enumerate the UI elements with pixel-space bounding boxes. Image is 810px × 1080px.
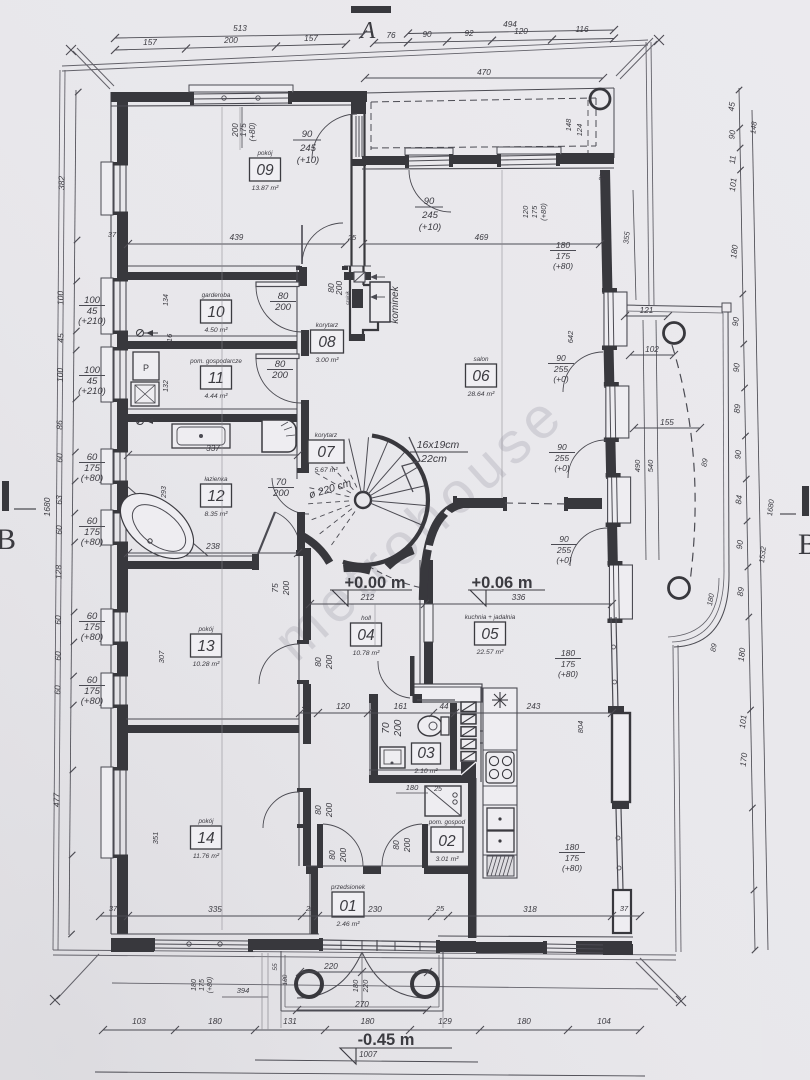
svg-text:100: 100 — [84, 295, 101, 306]
svg-text:200: 200 — [334, 281, 344, 296]
svg-text:60: 60 — [87, 452, 98, 463]
svg-text:1680: 1680 — [42, 497, 52, 516]
svg-text:513: 513 — [233, 24, 247, 33]
svg-text:60: 60 — [87, 675, 98, 686]
svg-text:103: 103 — [132, 1017, 146, 1026]
svg-text:89: 89 — [731, 403, 742, 414]
svg-text:37: 37 — [108, 230, 117, 239]
svg-text:80: 80 — [313, 805, 323, 815]
svg-text:10: 10 — [207, 304, 225, 321]
svg-text:10.78 m²: 10.78 m² — [353, 650, 381, 657]
svg-text:336: 336 — [512, 593, 526, 602]
svg-text:55: 55 — [272, 963, 279, 971]
svg-text:salon: salon — [473, 356, 489, 363]
svg-text:45: 45 — [55, 333, 65, 343]
svg-text:175: 175 — [561, 659, 575, 669]
svg-text:90: 90 — [559, 534, 569, 544]
svg-text:469: 469 — [475, 233, 489, 242]
svg-text:(+80): (+80) — [553, 261, 573, 271]
svg-text:37: 37 — [109, 904, 118, 913]
svg-text:307: 307 — [157, 650, 166, 663]
svg-text:łazienka: łazienka — [204, 476, 228, 483]
svg-text:132: 132 — [163, 380, 170, 392]
svg-text:355: 355 — [621, 230, 632, 244]
svg-text:161: 161 — [394, 702, 408, 711]
svg-text:22cm: 22cm — [420, 453, 447, 465]
svg-text:90: 90 — [732, 449, 743, 460]
svg-text:3.01 m²: 3.01 m² — [435, 856, 459, 863]
svg-text:80: 80 — [278, 291, 289, 302]
svg-text:100: 100 — [84, 365, 101, 376]
svg-text:09: 09 — [256, 162, 274, 179]
svg-text:470: 470 — [477, 68, 491, 77]
svg-text:60: 60 — [87, 611, 98, 622]
svg-text:642: 642 — [566, 330, 575, 343]
svg-text:101: 101 — [737, 714, 749, 729]
svg-text:477: 477 — [52, 793, 62, 807]
svg-text:(+80): (+80) — [562, 863, 582, 873]
svg-text:16x19cm: 16x19cm — [417, 439, 460, 451]
svg-text:92: 92 — [464, 29, 474, 38]
svg-text:243: 243 — [526, 702, 541, 711]
svg-text:07: 07 — [317, 444, 336, 461]
svg-text:pokój: pokój — [256, 150, 273, 157]
svg-text:12: 12 — [207, 488, 225, 505]
svg-text:90: 90 — [730, 316, 741, 327]
svg-text:60: 60 — [54, 525, 64, 535]
svg-text:63: 63 — [54, 495, 64, 505]
svg-text:08: 08 — [318, 334, 336, 351]
svg-text:2.10 m²: 2.10 m² — [413, 768, 438, 775]
svg-text:czujnik: czujnik — [345, 290, 350, 305]
svg-text:804: 804 — [576, 721, 585, 734]
svg-text:pokój: pokój — [197, 818, 214, 825]
svg-text:212: 212 — [360, 593, 375, 602]
svg-text:90: 90 — [734, 539, 745, 550]
svg-text:180: 180 — [406, 783, 419, 792]
svg-text:102: 102 — [645, 345, 659, 354]
svg-text:255: 255 — [556, 545, 571, 555]
svg-text:45: 45 — [726, 101, 737, 112]
svg-text:25: 25 — [301, 703, 310, 710]
svg-text:180: 180 — [282, 974, 289, 985]
svg-text:200: 200 — [281, 581, 291, 596]
svg-text:128: 128 — [53, 565, 63, 579]
svg-text:4.50 m²: 4.50 m² — [204, 327, 228, 334]
svg-text:kuchnia + jadalnia: kuchnia + jadalnia — [465, 614, 516, 621]
svg-text:(+80): (+80) — [248, 122, 257, 141]
svg-text:60: 60 — [52, 685, 62, 695]
svg-text:180: 180 — [565, 842, 579, 852]
svg-text:89: 89 — [735, 586, 746, 597]
svg-text:255: 255 — [553, 364, 568, 374]
svg-text:180: 180 — [556, 240, 570, 250]
svg-text:+0.06 m: +0.06 m — [471, 574, 532, 592]
svg-text:(+10): (+10) — [297, 155, 319, 166]
svg-text:90: 90 — [302, 129, 313, 140]
svg-text:01: 01 — [339, 898, 356, 915]
svg-text:25: 25 — [305, 904, 315, 913]
svg-text:120: 120 — [514, 27, 528, 36]
svg-text:02: 02 — [438, 833, 456, 850]
svg-text:335: 335 — [208, 905, 222, 914]
svg-text:(+80): (+80) — [81, 696, 103, 707]
svg-text:90: 90 — [556, 353, 566, 363]
svg-text:25: 25 — [435, 904, 445, 913]
svg-text:70: 70 — [276, 477, 287, 488]
svg-text:04: 04 — [357, 627, 375, 644]
svg-text:86: 86 — [55, 420, 65, 430]
svg-text:175: 175 — [239, 123, 248, 137]
svg-text:44: 44 — [439, 702, 449, 711]
svg-text:351: 351 — [151, 832, 160, 845]
svg-text:316: 316 — [165, 333, 174, 346]
svg-text:175: 175 — [530, 205, 539, 218]
svg-text:200: 200 — [274, 302, 292, 313]
svg-text:75: 75 — [270, 583, 280, 593]
svg-text:100: 100 — [55, 368, 65, 382]
svg-text:(+0): (+0) — [556, 555, 572, 565]
svg-text:(+80): (+80) — [81, 632, 103, 643]
svg-text:(+80): (+80) — [81, 473, 103, 484]
svg-text:06: 06 — [472, 368, 490, 385]
svg-text:(+80): (+80) — [81, 537, 103, 548]
svg-text:60: 60 — [53, 615, 63, 625]
svg-text:245: 245 — [299, 143, 317, 154]
svg-text:180: 180 — [361, 1017, 375, 1026]
svg-text:157: 157 — [143, 38, 157, 47]
svg-text:korytarz: korytarz — [315, 432, 338, 439]
svg-text:101: 101 — [727, 177, 739, 192]
svg-text:175: 175 — [556, 251, 570, 261]
svg-text:175: 175 — [199, 979, 206, 991]
svg-text:131: 131 — [283, 1017, 297, 1026]
svg-text:124: 124 — [575, 124, 584, 137]
svg-text:80: 80 — [313, 657, 323, 667]
svg-text:60: 60 — [87, 516, 98, 527]
svg-text:8.35 m²: 8.35 m² — [204, 511, 228, 518]
svg-text:korytarz: korytarz — [316, 322, 339, 329]
svg-text:439: 439 — [230, 233, 244, 242]
svg-text:11.76 m²: 11.76 m² — [193, 853, 220, 860]
svg-text:5.67 m²: 5.67 m² — [314, 467, 338, 474]
svg-text:200: 200 — [338, 848, 348, 863]
svg-text:+0.00 m: +0.00 m — [344, 574, 405, 592]
svg-text:180: 180 — [191, 979, 198, 991]
svg-text:37: 37 — [620, 904, 629, 913]
svg-text:05: 05 — [481, 626, 499, 643]
svg-text:22.57 m²: 22.57 m² — [476, 649, 505, 656]
svg-text:220: 220 — [361, 979, 370, 993]
svg-text:382: 382 — [57, 176, 67, 190]
svg-text:238: 238 — [205, 542, 220, 551]
svg-text:70: 70 — [381, 722, 392, 734]
svg-text:200: 200 — [393, 719, 404, 737]
svg-text:394: 394 — [237, 986, 250, 995]
svg-text:13.87 m²: 13.87 m² — [252, 185, 280, 192]
svg-text:121: 121 — [640, 306, 654, 315]
svg-text:(+80): (+80) — [558, 669, 578, 679]
svg-text:(+0): (+0) — [554, 463, 570, 473]
svg-text:(+80): (+80) — [207, 977, 214, 994]
svg-text:25: 25 — [347, 233, 357, 242]
svg-text:104: 104 — [597, 1017, 611, 1026]
svg-text:200: 200 — [324, 655, 334, 670]
svg-text:1007: 1007 — [359, 1050, 377, 1059]
svg-text:318: 318 — [523, 905, 537, 914]
svg-text:200: 200 — [272, 488, 290, 499]
svg-text:garderoba: garderoba — [202, 292, 231, 299]
svg-text:540: 540 — [646, 459, 655, 472]
svg-text:pom. gospod: pom. gospod — [428, 819, 466, 826]
svg-text:157: 157 — [304, 34, 318, 43]
svg-text:155: 155 — [660, 418, 674, 427]
svg-text:148: 148 — [564, 118, 573, 131]
svg-text:(+80): (+80) — [539, 203, 548, 221]
svg-text:P: P — [143, 363, 149, 373]
svg-text:148: 148 — [748, 120, 759, 134]
svg-text:116: 116 — [575, 25, 588, 34]
svg-text:80: 80 — [275, 359, 286, 370]
svg-text:14: 14 — [197, 830, 215, 847]
svg-text:przedsionek: przedsionek — [330, 884, 366, 891]
svg-text:490: 490 — [633, 459, 642, 472]
svg-text:84: 84 — [733, 494, 744, 505]
svg-text:90: 90 — [557, 442, 567, 452]
svg-text:(+0): (+0) — [553, 374, 569, 384]
svg-text:60: 60 — [53, 651, 63, 661]
svg-text:4.44 m²: 4.44 m² — [204, 393, 228, 400]
svg-text:11: 11 — [727, 155, 738, 165]
svg-text:28.64 m²: 28.64 m² — [467, 391, 496, 398]
svg-text:B: B — [0, 523, 16, 556]
svg-text:200: 200 — [402, 838, 412, 853]
svg-text:180: 180 — [351, 979, 360, 992]
svg-text:245: 245 — [421, 210, 439, 221]
svg-text:13: 13 — [197, 638, 215, 655]
svg-text:220: 220 — [323, 962, 338, 971]
svg-text:2.46 m²: 2.46 m² — [335, 921, 360, 928]
svg-text:100: 100 — [56, 291, 66, 305]
svg-text:180: 180 — [561, 648, 575, 658]
svg-text:90: 90 — [726, 129, 737, 140]
svg-text:76: 76 — [386, 31, 396, 40]
svg-text:holl: holl — [361, 615, 371, 622]
svg-text:170: 170 — [738, 752, 750, 767]
svg-text:180: 180 — [728, 244, 740, 259]
svg-text:3.00 m²: 3.00 m² — [315, 357, 339, 364]
svg-text:180: 180 — [208, 1017, 222, 1026]
svg-text:230: 230 — [367, 905, 382, 914]
svg-text:(+210): (+210) — [78, 386, 106, 397]
svg-text:200: 200 — [271, 370, 289, 381]
svg-text:90: 90 — [731, 362, 742, 373]
svg-text:337: 337 — [206, 444, 220, 453]
svg-text:kominek: kominek — [390, 285, 401, 323]
svg-text:180: 180 — [736, 647, 748, 662]
svg-text:pokój: pokój — [197, 626, 214, 633]
svg-text:90: 90 — [424, 196, 435, 207]
svg-text:03: 03 — [417, 745, 435, 762]
svg-text:90: 90 — [422, 30, 432, 39]
svg-text:270: 270 — [354, 1000, 369, 1009]
svg-text:180: 180 — [517, 1017, 531, 1026]
svg-text:200: 200 — [324, 803, 334, 818]
svg-text:10.28 m²: 10.28 m² — [193, 661, 221, 668]
svg-text:11: 11 — [208, 370, 224, 387]
svg-text:129: 129 — [438, 1017, 452, 1026]
svg-text:(+10): (+10) — [419, 222, 441, 233]
svg-text:120: 120 — [521, 205, 530, 218]
svg-text:25: 25 — [433, 786, 442, 793]
svg-text:pom. gospodarcze: pom. gospodarcze — [189, 358, 242, 365]
svg-text:293: 293 — [161, 486, 168, 499]
svg-text:B: B — [798, 528, 810, 561]
svg-text:80: 80 — [327, 850, 337, 860]
svg-text:200: 200 — [223, 36, 238, 45]
svg-text:134: 134 — [163, 294, 170, 306]
svg-text:80: 80 — [391, 840, 401, 850]
svg-text:120: 120 — [336, 702, 350, 711]
svg-text:175: 175 — [565, 853, 579, 863]
svg-text:60: 60 — [54, 453, 64, 463]
svg-text:(+210): (+210) — [78, 316, 106, 327]
svg-text:255: 255 — [554, 453, 569, 463]
